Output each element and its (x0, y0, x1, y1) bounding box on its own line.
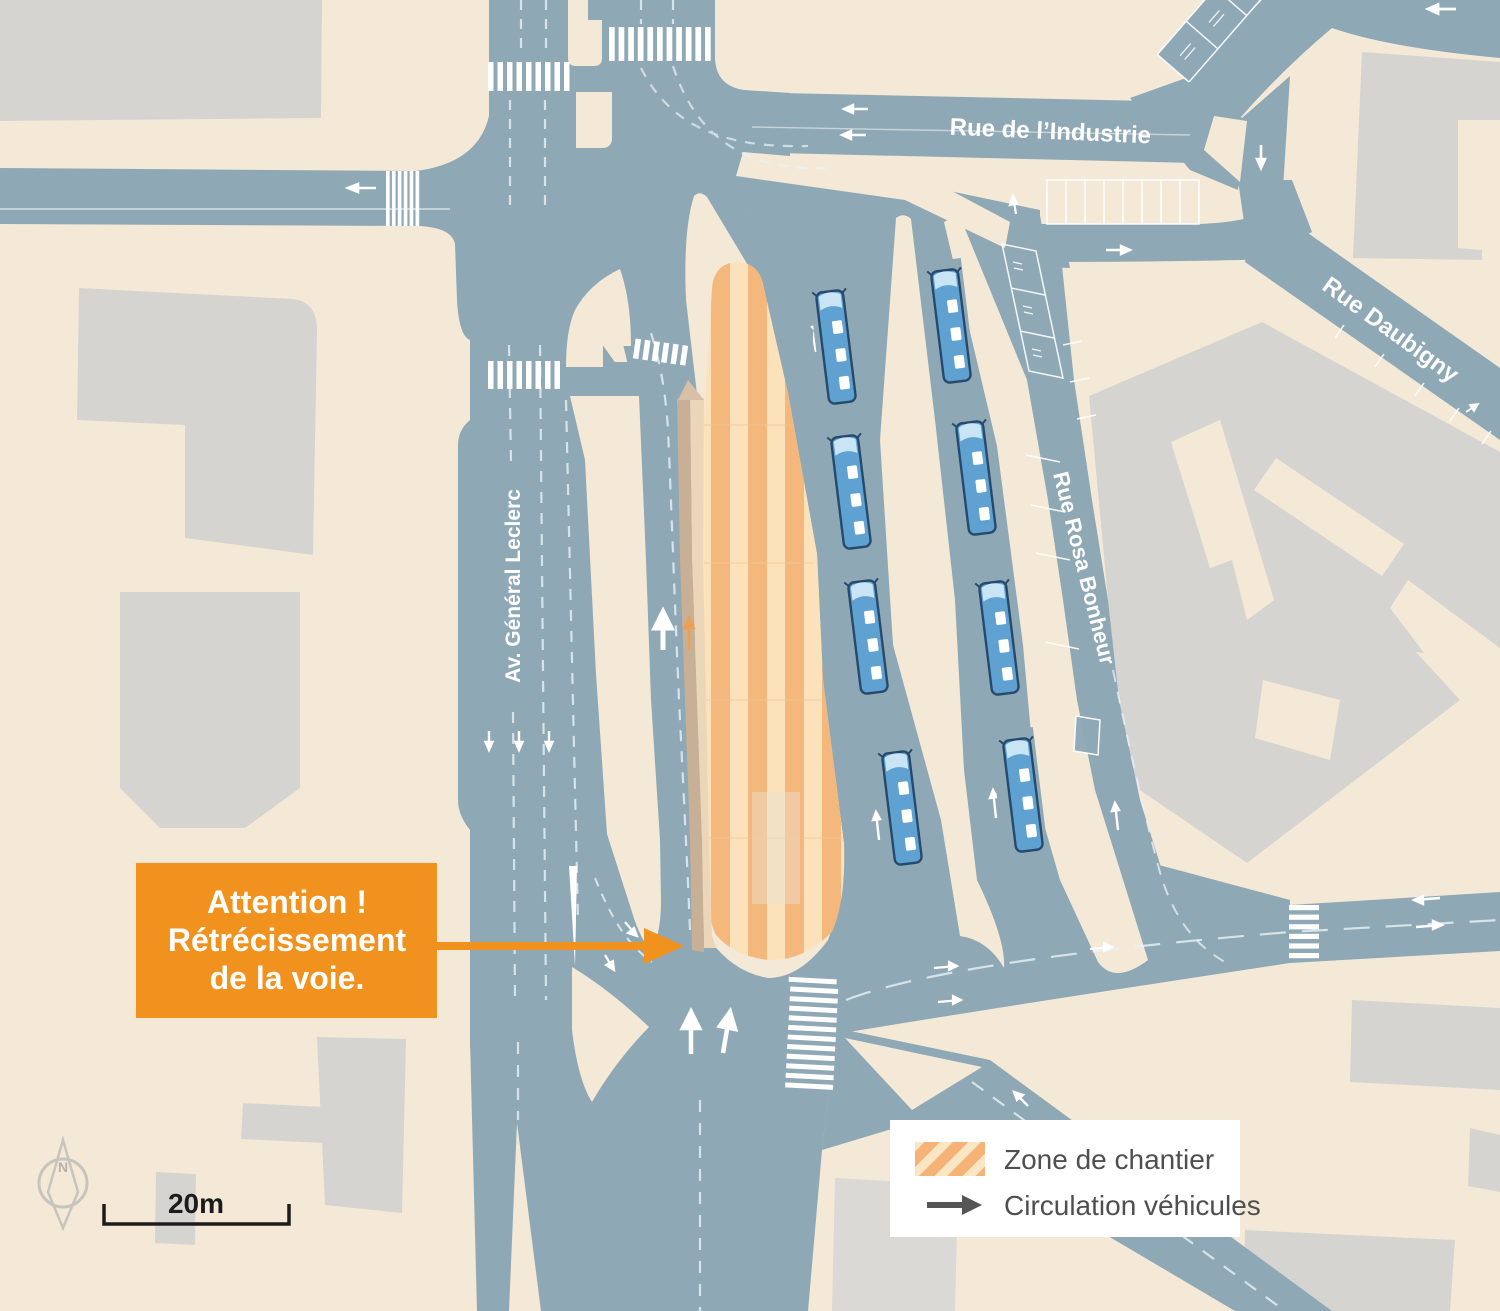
svg-text:Av. Général Leclerc: Av. Général Leclerc (502, 489, 525, 683)
svg-text:de la voie.: de la voie. (210, 960, 365, 996)
svg-text:Circulation véhicules: Circulation véhicules (1004, 1190, 1261, 1221)
svg-text:20m: 20m (168, 1188, 224, 1219)
svg-text:N: N (58, 1159, 68, 1175)
svg-text:Rétrécissement: Rétrécissement (168, 922, 407, 958)
svg-text:Zone de chantier: Zone de chantier (1004, 1144, 1214, 1175)
svg-text:Attention !: Attention ! (207, 884, 367, 920)
